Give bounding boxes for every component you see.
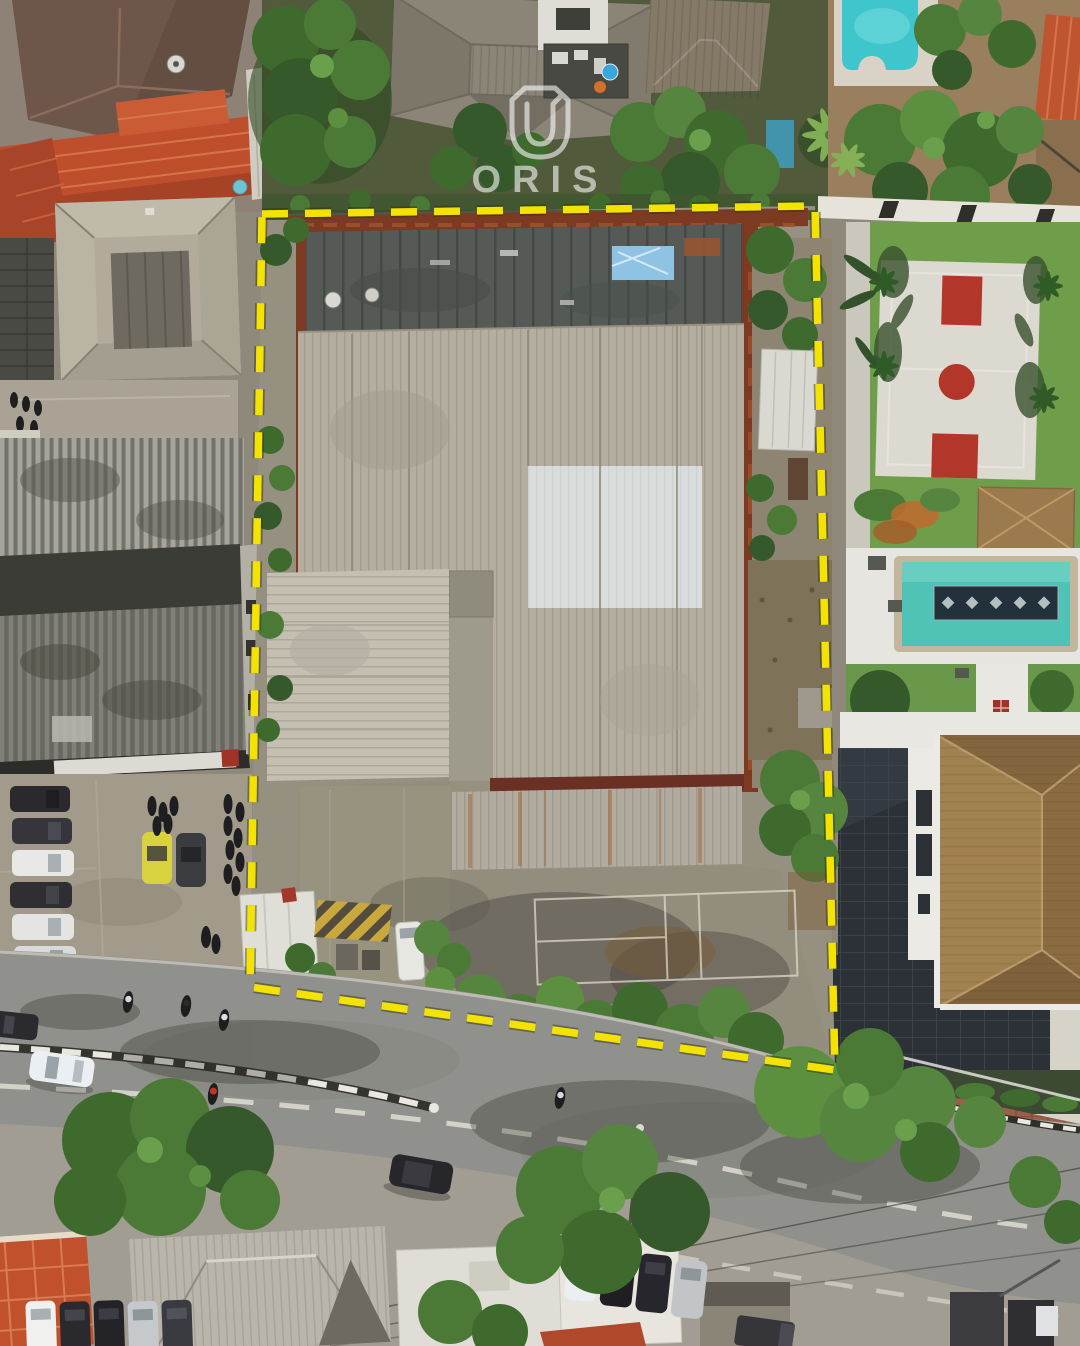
warehouse-concrete-deck xyxy=(306,224,742,334)
gray-hip-house xyxy=(55,197,241,381)
watermark-brand: ORIS xyxy=(472,159,609,201)
roof-vent xyxy=(365,288,379,302)
sports-compound xyxy=(840,222,1080,788)
warehouse-lower-roof xyxy=(267,569,449,781)
lap-pool-area xyxy=(846,548,1080,666)
water-tank xyxy=(233,180,247,194)
orange-tank xyxy=(594,81,606,93)
annex-roof xyxy=(452,786,742,870)
planter-box xyxy=(788,458,808,500)
hazard-stripes xyxy=(314,900,392,942)
parked-cars-row-sw xyxy=(25,1296,193,1346)
red-marker xyxy=(281,887,297,903)
neighborhood-top-right xyxy=(818,0,1080,234)
aerial-photo: ORIS xyxy=(0,0,1080,1346)
roof-vent xyxy=(325,292,341,308)
dark-warehouse-west xyxy=(0,438,262,780)
white-shed xyxy=(758,349,817,451)
big-brown-roof xyxy=(934,735,1080,1008)
blue-water-tank xyxy=(602,64,618,80)
property-interior xyxy=(201,206,883,1082)
concrete-court xyxy=(0,380,238,448)
court-key-bottom xyxy=(931,433,978,478)
neighborhood-top-left xyxy=(0,0,286,990)
shingle-roof-ne xyxy=(645,0,770,99)
court-key-top xyxy=(941,276,982,326)
